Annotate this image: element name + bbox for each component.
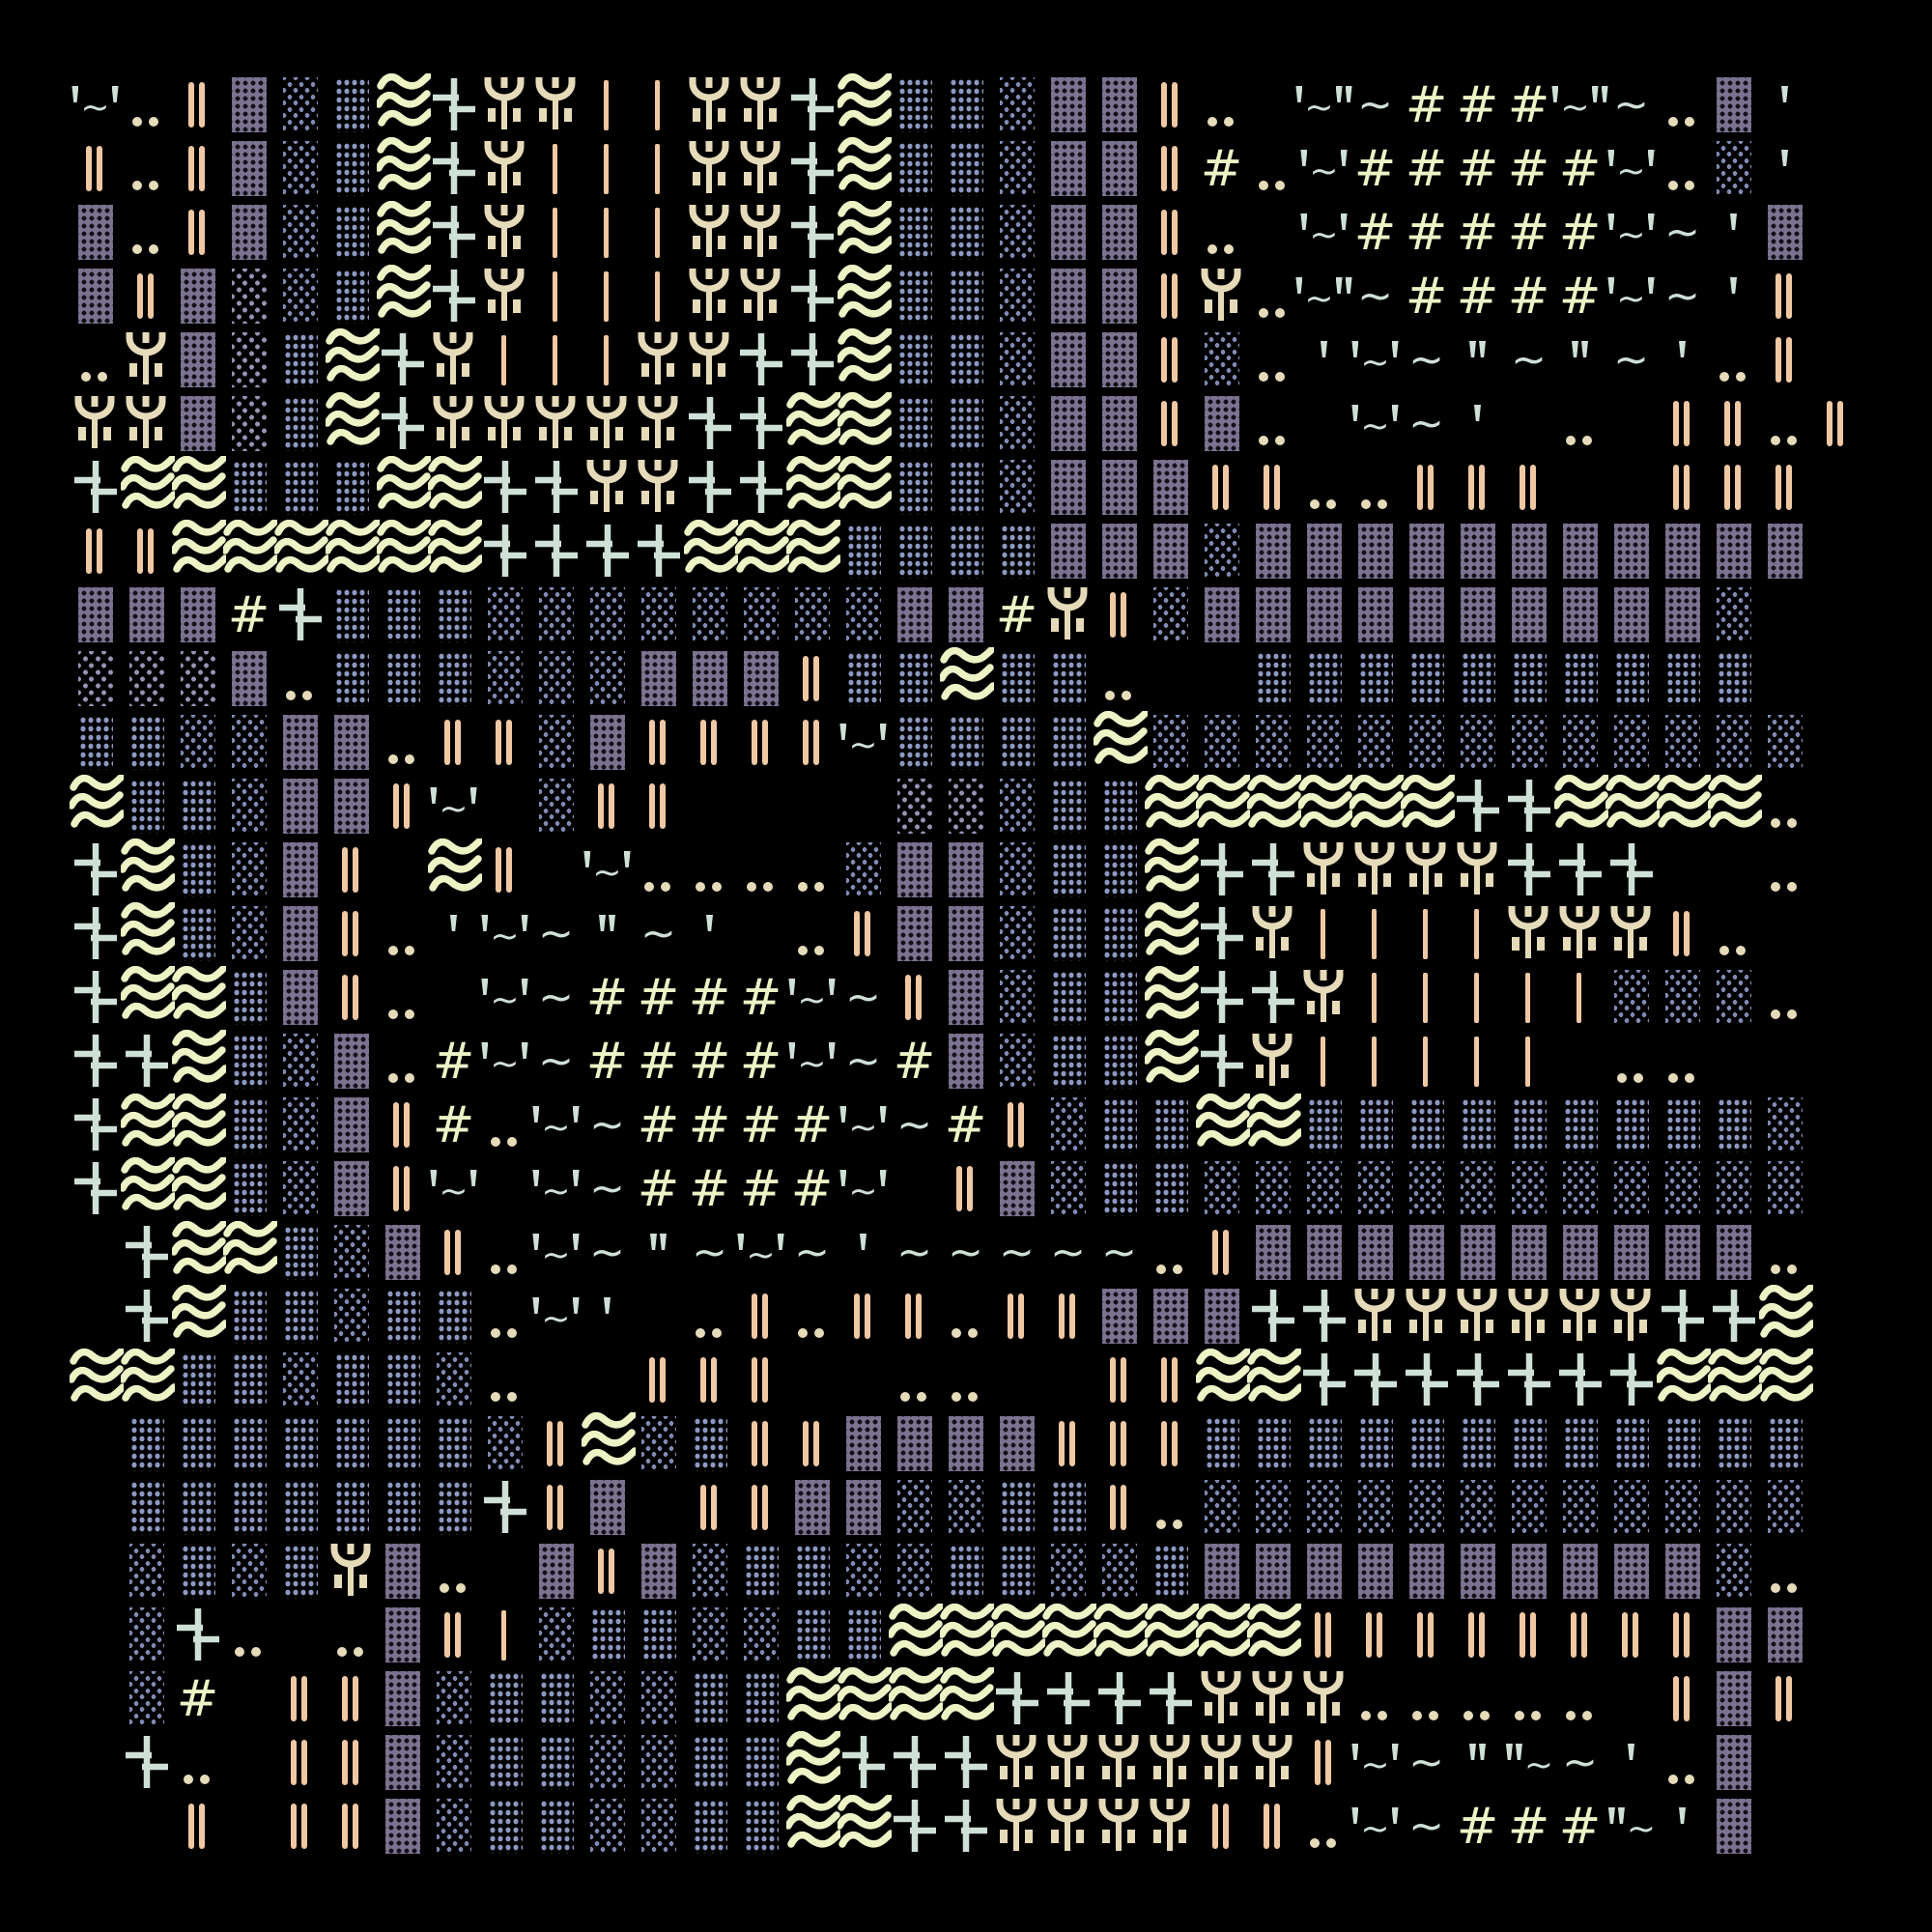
dot-block-blue-dense <box>940 328 991 392</box>
cross-icon <box>274 583 326 647</box>
dot-block-blue-dense <box>488 1735 523 1790</box>
checker-block-purple <box>1102 332 1137 387</box>
dot-block-blue-dense <box>1401 1094 1452 1157</box>
hash-glyph: # <box>1554 201 1605 265</box>
dot-block-blue-dense <box>786 1540 838 1604</box>
dot-block-blue-sparse <box>1452 1476 1503 1540</box>
wave-icon <box>172 1030 223 1094</box>
dot-block-blue-sparse <box>539 587 574 642</box>
cross-icon <box>1298 1349 1350 1412</box>
trident-icon <box>1042 1731 1094 1795</box>
double-bar-icon <box>530 1476 582 1540</box>
dot-block-purple-sparse <box>949 779 983 834</box>
cross-icon <box>786 201 838 265</box>
dot-block-blue-dense <box>846 651 881 706</box>
checker-block-purple <box>377 1540 428 1604</box>
double-tick-glyph <box>1554 328 1605 392</box>
cross-icon <box>70 1094 121 1157</box>
checker-block-purple <box>1145 520 1196 583</box>
dot-block-blue-sparse <box>181 715 215 770</box>
dot-block-blue-sparse <box>1768 1480 1803 1535</box>
checker-block-purple <box>172 392 223 456</box>
dot-block-blue-dense <box>1094 1157 1145 1221</box>
dot-block-purple-sparse <box>232 332 267 387</box>
checker-block-purple <box>1094 201 1145 265</box>
trident-icon <box>735 137 786 201</box>
dot-block-blue-sparse <box>1503 711 1554 775</box>
dot-block-blue-sparse <box>1717 1161 1751 1216</box>
dot-block-blue-sparse <box>1768 1161 1803 1216</box>
double-dot-icon <box>377 966 428 1030</box>
hash-glyph: # <box>735 1157 786 1221</box>
double-dot-icon <box>377 902 428 966</box>
dot-block-blue-dense <box>744 1735 779 1790</box>
wave-icon <box>223 520 277 580</box>
dot-block-blue-dense <box>1042 647 1094 711</box>
dot-block-blue-dense <box>1665 1097 1700 1152</box>
double-bar-icon <box>1145 392 1196 456</box>
dot-block-purple-sparse <box>70 647 121 711</box>
dot-block-blue-dense <box>539 1735 574 1790</box>
tick-mark <box>604 1297 611 1314</box>
dot-block-blue-dense <box>1256 1416 1291 1471</box>
dot-block-blue-dense <box>1307 651 1342 706</box>
cross-icon <box>1503 838 1554 902</box>
cross-icon <box>1657 1285 1708 1349</box>
dot-block-blue-sparse <box>283 205 318 260</box>
wave-icon <box>838 201 889 265</box>
dot-block-blue-sparse <box>1256 715 1291 770</box>
hash-glyph: # <box>1503 201 1554 265</box>
checker-block-purple <box>949 587 983 642</box>
dot-block-blue-sparse <box>129 1671 164 1726</box>
checker-block-purple <box>1051 205 1086 260</box>
dot-block-blue-dense <box>744 1544 779 1599</box>
tilde-glyph: ~ <box>1350 73 1401 137</box>
dot-block-blue-sparse <box>991 966 1042 1030</box>
dot-block-blue-dense <box>1350 647 1401 711</box>
double-dot-icon <box>1605 1030 1657 1094</box>
dot-block-blue-dense <box>735 1731 786 1795</box>
tick-mark <box>1628 1744 1634 1760</box>
checker-block-purple <box>1042 392 1094 456</box>
checker-block-purple <box>1145 1285 1196 1349</box>
dot-block-blue-sparse <box>1409 1161 1444 1216</box>
dot-block-blue-dense <box>1000 1480 1035 1535</box>
wave-icon <box>377 456 428 520</box>
dot-block-blue-sparse <box>1409 1480 1444 1535</box>
double-dot-icon <box>786 902 838 966</box>
cross-icon <box>1247 1285 1298 1349</box>
dot-block-blue-sparse <box>1094 1540 1145 1604</box>
double-bar-icon <box>1452 456 1503 520</box>
dot-block-purple-sparse <box>232 396 267 451</box>
dot-block-blue-sparse <box>1256 1480 1291 1535</box>
double-dot-icon <box>1452 1667 1503 1731</box>
checker-block-purple <box>1708 1667 1759 1731</box>
dot-block-blue-sparse <box>530 775 582 838</box>
tick-mark <box>839 1170 846 1186</box>
cross-icon <box>428 137 479 201</box>
double-bar-icon <box>1196 1795 1247 1859</box>
dot-block-purple-sparse <box>121 647 172 711</box>
double-dot-icon <box>121 137 172 201</box>
dot-block-blue-sparse <box>1614 1161 1649 1216</box>
wave-icon <box>377 73 431 133</box>
dot-block-blue-dense <box>582 1604 633 1667</box>
tick-mark <box>1351 1744 1358 1760</box>
trident-icon <box>428 392 479 456</box>
trident-icon <box>1554 1285 1605 1349</box>
dot-block-blue-dense <box>1094 1030 1145 1094</box>
quote-tilde-quote-glyph: ~ <box>530 1157 582 1221</box>
tick-mark <box>1479 1744 1486 1760</box>
dot-block-blue-sparse <box>1000 269 1035 324</box>
dot-block-blue-sparse <box>889 1476 940 1540</box>
quote-tilde-dquote-glyph: ~ <box>1298 265 1350 328</box>
wave-icon <box>172 1157 223 1221</box>
tick-glyph <box>838 1221 889 1285</box>
hash-glyph: # <box>889 1030 940 1094</box>
dot-block-blue-sparse <box>1298 711 1350 775</box>
trident-icon <box>1247 1667 1298 1731</box>
trident-icon <box>1605 1285 1657 1349</box>
dot-block-blue-dense <box>889 456 940 520</box>
wave-icon <box>377 265 431 325</box>
double-bar-icon <box>1042 1412 1094 1476</box>
dot-block-blue-sparse <box>1042 1540 1094 1604</box>
tilde-glyph: ~ <box>1401 328 1452 392</box>
double-bar-icon <box>172 137 223 201</box>
cross-icon <box>1247 838 1298 902</box>
checker-block-purple <box>684 647 735 711</box>
double-dot-icon <box>1657 1030 1708 1094</box>
trident-icon <box>1503 902 1554 966</box>
trident-icon <box>1503 1285 1554 1349</box>
dot-block-blue-dense <box>1000 715 1035 770</box>
double-dot-icon <box>1657 137 1708 201</box>
cross-icon <box>172 1604 223 1667</box>
dot-block-blue-sparse <box>1145 583 1196 647</box>
dot-block-blue-dense <box>1717 1097 1751 1152</box>
dot-block-blue-sparse <box>479 583 530 647</box>
dot-block-blue-dense <box>1051 842 1086 897</box>
cross-icon <box>786 137 838 201</box>
checker-block-purple <box>1153 1289 1188 1344</box>
dot-block-blue-dense <box>1000 651 1035 706</box>
double-bar-icon <box>786 711 838 775</box>
dot-block-blue-dense <box>633 1604 684 1667</box>
tick-mark <box>450 915 457 931</box>
dot-block-blue-sparse <box>539 1607 574 1662</box>
checker-block-purple <box>1042 328 1094 392</box>
checker-block-purple <box>334 715 369 770</box>
quote-tilde-quote-glyph: ~ <box>735 1221 786 1285</box>
tick-mark <box>522 915 528 931</box>
wave-icon <box>889 1667 943 1727</box>
cross-icon <box>1503 838 1554 902</box>
dot-block-blue-dense <box>897 715 932 770</box>
dot-block-purple-sparse <box>223 328 274 392</box>
wave-icon <box>838 1795 892 1855</box>
tick-mark <box>470 787 477 804</box>
double-bar-icon <box>377 1094 428 1157</box>
wave-icon <box>838 1667 889 1731</box>
dot-block-blue-sparse <box>1102 1544 1137 1599</box>
dot-block-blue-dense <box>735 1667 786 1731</box>
dot-block-blue-sparse <box>590 587 625 642</box>
dot-block-blue-dense <box>1461 651 1495 706</box>
cross-icon <box>1196 1030 1247 1094</box>
tick-mark <box>430 787 437 804</box>
wave-icon <box>838 456 892 516</box>
dot-block-blue-dense <box>684 1795 735 1859</box>
cross-icon <box>70 1030 121 1094</box>
dot-block-blue-dense <box>1153 1161 1188 1216</box>
hash-glyph: # <box>1452 201 1503 265</box>
cross-icon <box>582 520 633 583</box>
wave-icon <box>838 392 892 452</box>
double-bar-icon <box>274 1667 326 1731</box>
dot-block-blue-dense <box>735 1540 786 1604</box>
tick-mark <box>481 979 488 995</box>
dot-block-blue-dense <box>1102 906 1137 961</box>
dot-block-blue-sparse <box>129 1607 164 1662</box>
dot-block-blue-sparse <box>1503 1157 1554 1221</box>
dot-block-blue-dense <box>326 1476 377 1540</box>
tick-mark <box>1392 1744 1399 1760</box>
checker-block-purple <box>334 1161 369 1216</box>
dot-block-blue-dense <box>479 1731 530 1795</box>
double-dot-icon <box>1247 265 1298 328</box>
wave-icon <box>223 520 274 583</box>
dot-block-blue-sparse <box>991 456 1042 520</box>
checker-block-purple <box>1307 1544 1342 1599</box>
single-bar-icon <box>530 201 582 265</box>
dot-block-blue-sparse <box>1768 1097 1803 1152</box>
dot-block-blue-sparse <box>590 1799 625 1854</box>
checker-block-purple <box>1094 520 1145 583</box>
dot-block-blue-sparse <box>283 1352 318 1407</box>
dot-block-blue-sparse <box>530 583 582 647</box>
checker-block-purple <box>1153 524 1188 579</box>
trident-icon <box>1196 265 1247 328</box>
dot-block-blue-dense <box>1563 1416 1598 1471</box>
cross-icon <box>1605 838 1657 902</box>
quote-tilde-quote-glyph: ~ <box>582 838 633 902</box>
dot-block-blue-dense <box>838 520 889 583</box>
double-dot-icon <box>1759 1540 1810 1604</box>
checker-block-purple <box>991 1157 1042 1221</box>
wave-icon <box>786 520 840 580</box>
wave-icon <box>274 520 328 580</box>
checker-block-purple <box>232 651 267 706</box>
hash-glyph: # <box>735 1094 786 1157</box>
dot-block-blue-dense <box>1657 1094 1708 1157</box>
dot-block-blue-dense <box>1358 651 1393 706</box>
dot-block-blue-dense <box>693 1799 727 1854</box>
tick-mark <box>112 86 119 102</box>
hash-glyph: # <box>1452 1795 1503 1859</box>
cross-icon <box>70 456 121 520</box>
dot-block-blue-dense <box>1605 647 1657 711</box>
dot-block-purple-sparse <box>940 775 991 838</box>
dot-block-blue-sparse <box>991 838 1042 902</box>
quote-tilde-quote-glyph: ~ <box>1605 265 1657 328</box>
trident-icon <box>479 137 530 201</box>
checker-block-purple <box>1298 1221 1350 1285</box>
tilde-glyph: ~ <box>1503 328 1554 392</box>
cross-icon <box>70 902 121 966</box>
checker-block-purple <box>1461 1544 1495 1599</box>
checker-block-purple <box>949 906 983 961</box>
tilde-glyph: ~ <box>439 792 468 827</box>
quote-tilde-dquote-glyph: ~ <box>1554 73 1605 137</box>
tick-mark <box>650 1234 657 1250</box>
wave-icon <box>172 1157 226 1217</box>
dot-block-blue-sparse <box>1708 1157 1759 1221</box>
hash-glyph: # <box>633 1094 684 1157</box>
wave-icon <box>1145 775 1199 835</box>
cross-icon <box>786 201 838 265</box>
cross-icon <box>121 1221 172 1285</box>
double-dot-icon <box>1196 201 1247 265</box>
single-bar-icon <box>530 265 582 328</box>
tick-mark <box>573 1234 580 1250</box>
wave-icon <box>838 265 889 328</box>
tilde-glyph: ~ <box>1309 218 1338 253</box>
wave-icon <box>940 1604 991 1667</box>
single-bar-icon <box>582 73 633 137</box>
tick-mark <box>599 915 606 931</box>
wave-icon <box>1708 775 1759 838</box>
dot-block-blue-dense <box>1665 651 1700 706</box>
double-bar-icon <box>684 1349 735 1412</box>
dot-block-blue-sparse <box>437 1352 471 1407</box>
checker-block-purple <box>1350 1540 1401 1604</box>
double-bar-icon <box>991 1094 1042 1157</box>
dot-block-blue-sparse <box>223 711 274 775</box>
cross-icon <box>1196 838 1247 902</box>
trident-icon <box>1452 1285 1503 1349</box>
trident-icon <box>1298 1667 1350 1731</box>
tick-mark <box>1516 1744 1522 1760</box>
dot-block-blue-dense <box>1358 1416 1393 1471</box>
dot-block-blue-dense <box>428 647 479 711</box>
cross-icon <box>940 1731 991 1795</box>
dot-block-blue-sparse <box>693 587 727 642</box>
dot-block-blue-sparse <box>530 1604 582 1667</box>
tilde-glyph: ~ <box>848 1175 877 1209</box>
dot-block-blue-sparse <box>1665 1480 1700 1535</box>
dot-block-blue-dense <box>949 1544 983 1599</box>
trident-icon <box>1042 1731 1094 1795</box>
dot-block-blue-dense <box>897 141 932 196</box>
tick-mark <box>880 1170 887 1186</box>
double-dot-icon <box>633 838 684 902</box>
tick-mark <box>481 1042 488 1059</box>
dot-block-blue-dense <box>1042 966 1094 1030</box>
wave-icon <box>786 456 840 516</box>
hash-glyph: # <box>1401 137 1452 201</box>
tilde-glyph: ~ <box>1605 73 1657 137</box>
checker-block-purple <box>1503 583 1554 647</box>
trident-icon <box>1145 1731 1196 1795</box>
wave-icon <box>70 775 121 838</box>
wave-icon <box>1298 775 1350 838</box>
hash-glyph: # <box>1350 137 1401 201</box>
dot-block-blue-dense <box>693 1671 727 1726</box>
double-dot-icon <box>1759 966 1810 1030</box>
cross-icon <box>786 73 838 137</box>
dot-block-blue-sparse <box>1563 715 1598 770</box>
wave-icon <box>1759 1349 1810 1412</box>
dot-block-blue-sparse <box>1298 1476 1350 1540</box>
dot-block-blue-dense <box>488 1671 523 1726</box>
double-dot-icon <box>479 1094 530 1157</box>
checker-block-purple <box>1401 1540 1452 1604</box>
dot-block-blue-dense <box>283 1416 318 1471</box>
single-bar-icon <box>1503 1030 1554 1094</box>
dot-block-blue-dense <box>326 137 377 201</box>
trident-icon <box>735 265 786 328</box>
tick-glyph <box>1708 265 1759 328</box>
trident-icon <box>684 201 735 265</box>
dot-block-blue-dense <box>437 587 471 642</box>
tilde-glyph: ~ <box>1616 282 1645 317</box>
wave-icon <box>121 838 175 898</box>
double-bar-icon <box>1759 328 1810 392</box>
checker-block-purple <box>1717 1735 1751 1790</box>
dot-block-blue-dense <box>1042 838 1094 902</box>
double-bar-icon <box>1401 1604 1452 1667</box>
checker-block-purple <box>1102 205 1137 260</box>
dot-block-blue-sparse <box>582 1667 633 1731</box>
tick-mark <box>1648 277 1655 294</box>
dot-block-blue-sparse <box>1614 970 1649 1025</box>
double-bar-icon <box>326 902 377 966</box>
trident-icon <box>1452 1285 1503 1349</box>
cross-icon <box>735 392 786 456</box>
quote-tilde-quote-glyph: ~ <box>1350 392 1401 456</box>
checker-block-purple <box>1605 1221 1657 1285</box>
dot-block-blue-dense <box>1759 1412 1810 1476</box>
tick-mark <box>573 1170 580 1186</box>
checker-block-purple <box>1051 460 1086 515</box>
wave-icon <box>377 456 431 516</box>
dot-block-blue-dense <box>1563 651 1598 706</box>
dot-block-blue-dense <box>326 1412 377 1476</box>
dot-block-blue-dense <box>1409 651 1444 706</box>
checker-block-purple <box>223 137 274 201</box>
dot-block-blue-dense <box>1563 1097 1598 1152</box>
dot-block-blue-dense <box>326 201 377 265</box>
checker-block-purple <box>283 970 318 1025</box>
dot-block-blue-dense <box>232 460 267 515</box>
checker-block-purple <box>838 1476 889 1540</box>
wave-icon <box>1145 838 1199 898</box>
cross-icon <box>940 1795 991 1859</box>
tilde-glyph: ~ <box>797 1047 826 1082</box>
double-bar-icon <box>735 1476 786 1540</box>
tilde-glyph: ~ <box>439 1175 468 1209</box>
dot-block-blue-dense <box>129 1480 164 1535</box>
double-bar-icon <box>1247 456 1298 520</box>
cross-icon <box>838 1731 889 1795</box>
dot-block-blue-dense <box>223 1349 274 1412</box>
checker-block-purple <box>1256 587 1291 642</box>
hash-glyph: # <box>428 1030 479 1094</box>
